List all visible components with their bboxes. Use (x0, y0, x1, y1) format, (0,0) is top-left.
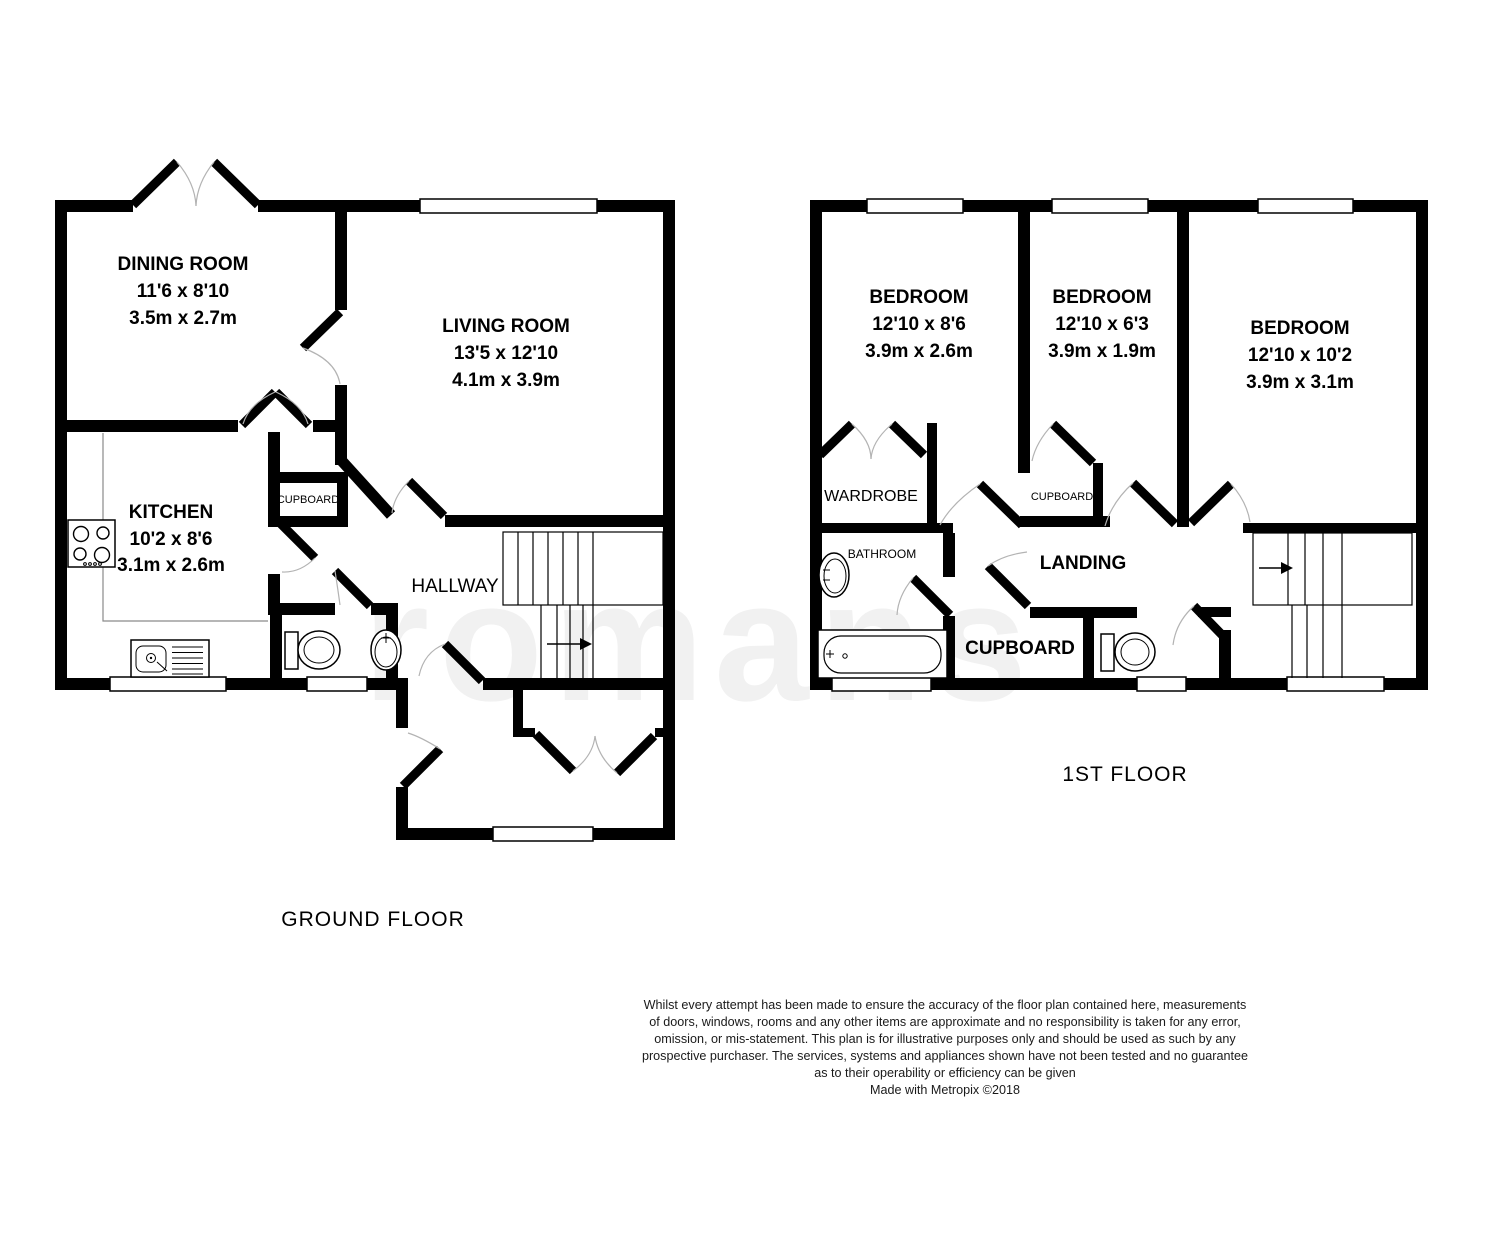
living-room-metric: 4.1m x 3.9m (452, 370, 560, 391)
ff-cupboard-large-label: CUPBOARD (965, 638, 1075, 659)
kitchen-name: KITCHEN (129, 502, 213, 523)
kitchen-counter (103, 433, 268, 621)
bathroom-label: BATHROOM (848, 547, 916, 561)
kitchen-sink-fixture (131, 640, 209, 677)
wardrobe-label: WARDROBE (824, 488, 918, 505)
bedroom2-name: BEDROOM (1052, 287, 1151, 308)
bathroom-basin-fixture (819, 553, 849, 597)
ff-staircase (1253, 533, 1412, 678)
window-bedroom1-top (867, 199, 963, 213)
bedroom3-name: BEDROOM (1250, 318, 1349, 339)
window-living-top (420, 199, 597, 213)
bedroom1-imperial: 12'10 x 8'6 (872, 314, 966, 335)
floorplan-canvas: romans (0, 0, 1500, 1250)
hob-fixture (68, 520, 115, 567)
bedroom2-imperial: 12'10 x 6'3 (1055, 314, 1149, 335)
window-bedroom2-top (1052, 199, 1148, 213)
hallway-label: HALLWAY (411, 576, 499, 597)
bedroom2-metric: 3.9m x 1.9m (1048, 341, 1156, 362)
gf-wc-fixtures (285, 630, 401, 670)
kitchen-imperial: 10'2 x 8'6 (130, 529, 213, 550)
disclaimer-block: Whilst every attempt has been made to en… (642, 998, 1248, 1097)
toilet-fixture (285, 631, 340, 669)
ground-floor-title: GROUND FLOOR (281, 908, 465, 931)
bedroom1-name: BEDROOM (869, 287, 968, 308)
window-porch-bottom (493, 827, 593, 841)
dining-room-name: DINING ROOM (118, 254, 249, 275)
window-kitchen-bottom (110, 677, 226, 691)
window-wc-bottom-ff (1137, 677, 1186, 691)
bedroom3-imperial: 12'10 x 10'2 (1248, 345, 1352, 366)
window-bedroom3-top (1258, 199, 1353, 213)
disclaimer-line-4: prospective purchaser. The services, sys… (642, 1049, 1248, 1063)
disclaimer-line-2: of doors, windows, rooms and any other i… (649, 1015, 1241, 1029)
living-room-imperial: 13'5 x 12'10 (454, 343, 558, 364)
living-room-name: LIVING ROOM (442, 316, 570, 337)
first-floor-title: 1ST FLOOR (1062, 763, 1187, 786)
gf-cupboard-label: CUPBOARD (277, 494, 339, 506)
metropix-credit: Made with Metropix ©2018 (870, 1083, 1020, 1097)
window-wc-bottom (307, 677, 367, 691)
bedroom1-metric: 3.9m x 2.6m (865, 341, 973, 362)
wash-basin-fixture (371, 630, 401, 670)
dining-room-metric: 3.5m x 2.7m (129, 308, 237, 329)
window-bathroom-bottom (832, 677, 931, 691)
window-stairs-bottom (1287, 677, 1384, 691)
landing-label: LANDING (1040, 553, 1127, 574)
bedroom3-metric: 3.9m x 3.1m (1246, 372, 1354, 393)
disclaimer-line-1: Whilst every attempt has been made to en… (644, 998, 1247, 1012)
ff-toilet-fixture (1101, 633, 1155, 671)
bath-fixture (818, 630, 947, 678)
kitchen-metric: 3.1m x 2.6m (117, 555, 225, 576)
dining-room-imperial: 11'6 x 8'10 (137, 281, 230, 302)
ff-cupboard-small-label: CUPBOARD (1031, 491, 1093, 503)
disclaimer-line-5: as to their operability or efficiency ca… (814, 1066, 1076, 1080)
disclaimer-line-3: omission, or mis-statement. This plan is… (654, 1032, 1236, 1046)
floorplan-page: romans (0, 0, 1500, 1250)
